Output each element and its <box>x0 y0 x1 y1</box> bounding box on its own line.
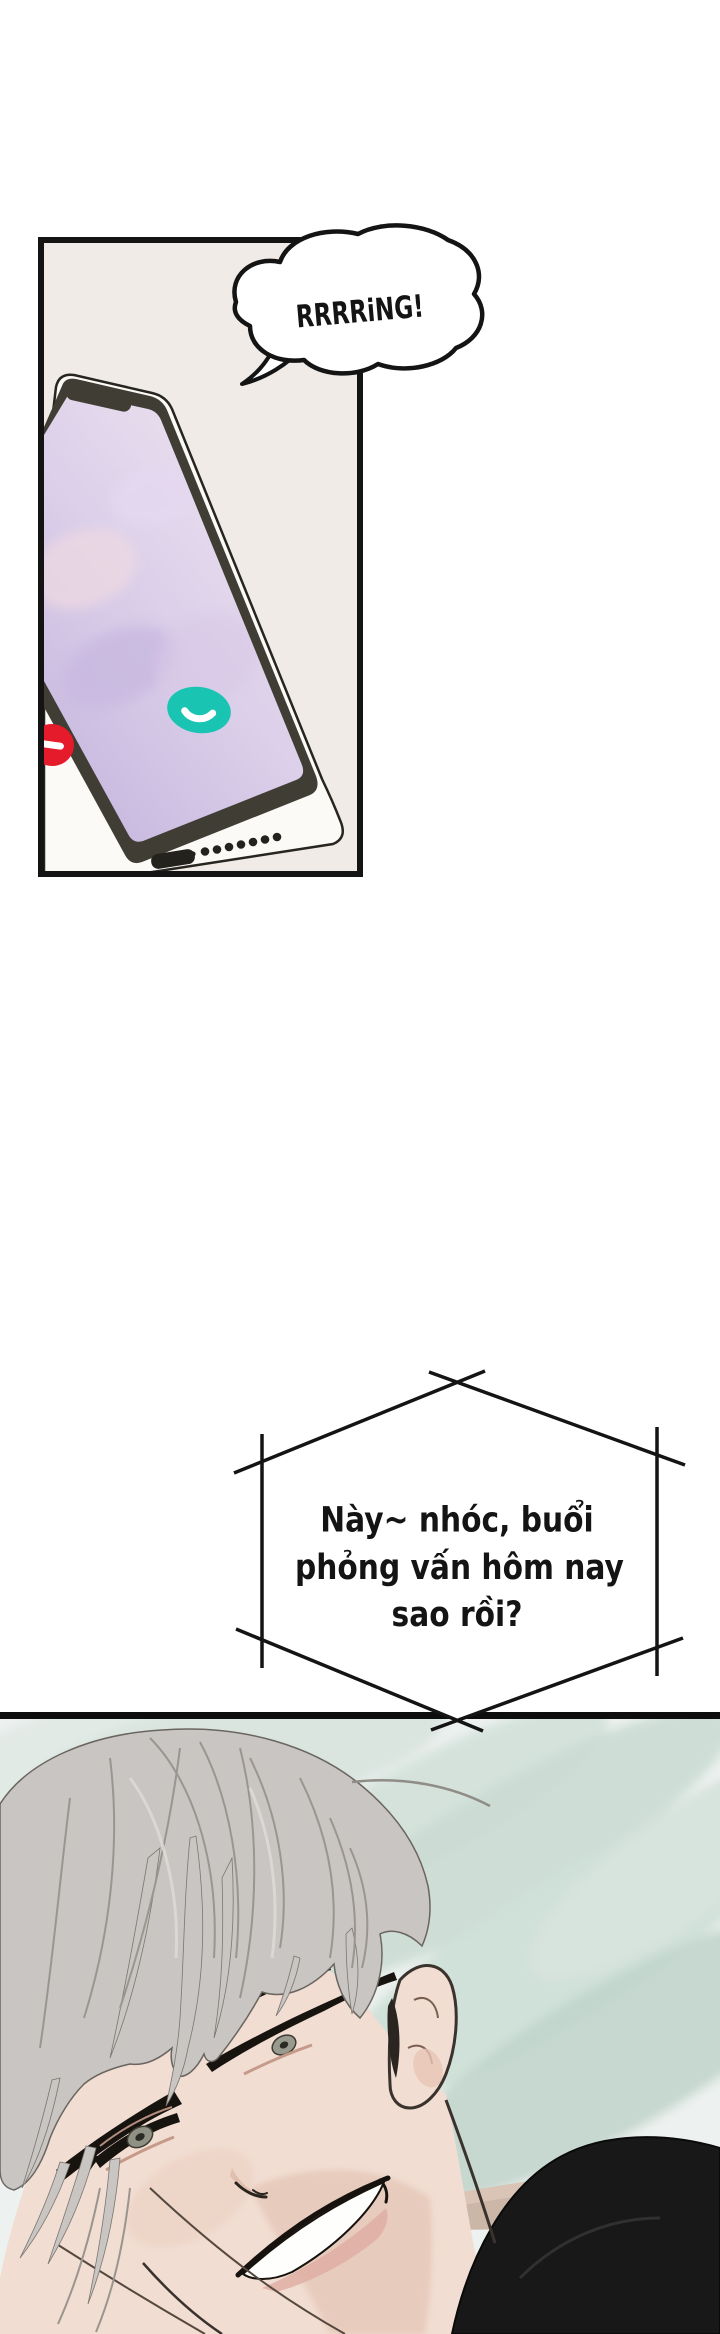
call-bubble-line-3: sao rồi? <box>295 1591 619 1638</box>
call-bubble-line-2: phỏng vấn hôm nay <box>295 1543 619 1590</box>
panel-character <box>0 1718 720 2334</box>
call-bubble-text: Này~ nhóc, buổi phỏng vấn hôm nay sao rồ… <box>295 1496 619 1638</box>
sfx-speech-bubble: RRRRiNG! <box>218 218 503 413</box>
comic-page: RRRRiNG! Này~ nhóc, buổi phỏng vấn hôm n… <box>0 0 720 2334</box>
call-bubble-line-1: Này~ nhóc, buổi <box>295 1496 619 1543</box>
